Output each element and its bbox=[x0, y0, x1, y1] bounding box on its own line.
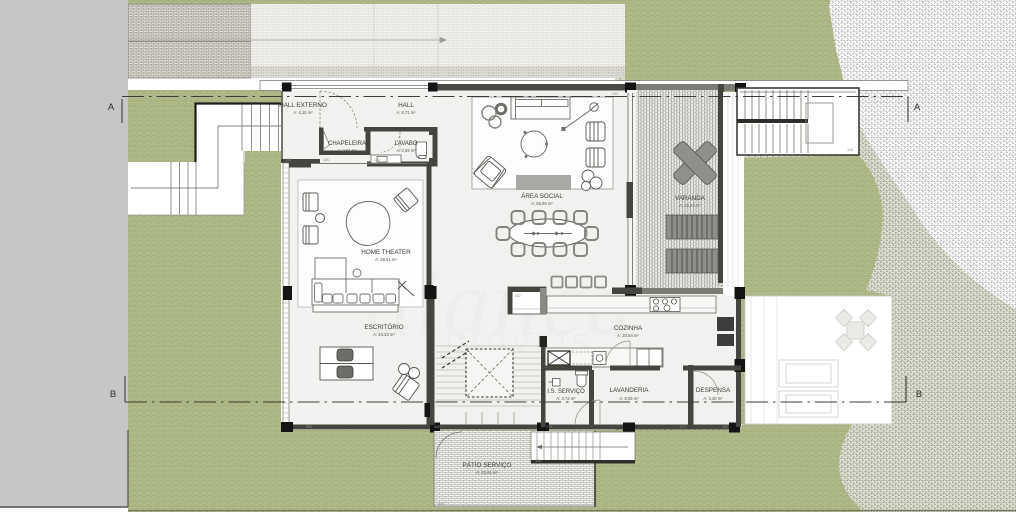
svg-text:A: 2,51 m²: A: 2,51 m² bbox=[337, 148, 357, 153]
svg-text:A: 3,73 m²: A: 3,73 m² bbox=[556, 396, 576, 401]
svg-text:VARANDA: VARANDA bbox=[675, 195, 706, 202]
svg-text:HALL EXTERNO: HALL EXTERNO bbox=[279, 102, 327, 109]
svg-text:ÁREA SOCIAL: ÁREA SOCIAL bbox=[521, 191, 563, 200]
svg-text:245: 245 bbox=[612, 92, 618, 96]
svg-text:A: A bbox=[914, 102, 921, 113]
svg-text:DESPENSA: DESPENSA bbox=[696, 387, 731, 394]
svg-text:A: 6,71 m²: A: 6,71 m² bbox=[396, 110, 416, 115]
svg-text:COZINHA: COZINHA bbox=[614, 325, 643, 332]
svg-text:520: 520 bbox=[306, 425, 312, 429]
svg-text:HALL: HALL bbox=[398, 102, 414, 109]
svg-text:152: 152 bbox=[722, 425, 728, 429]
svg-text:140: 140 bbox=[374, 158, 380, 162]
svg-text:A: 20,54 m²: A: 20,54 m² bbox=[617, 333, 639, 338]
svg-text:LAVABO: LAVABO bbox=[394, 141, 417, 147]
svg-text:A: 32,24 m²: A: 32,24 m² bbox=[679, 203, 701, 208]
svg-text:A: 22,91 m²: A: 22,91 m² bbox=[476, 470, 498, 475]
svg-text:A: A bbox=[108, 102, 115, 113]
svg-text:PÁTIO SERVIÇO: PÁTIO SERVIÇO bbox=[463, 460, 512, 469]
svg-text:A: 8,05 m²: A: 8,05 m² bbox=[619, 396, 639, 401]
svg-text:HOME THEATER: HOME THEATER bbox=[361, 249, 411, 256]
svg-text:110: 110 bbox=[847, 148, 853, 152]
svg-text:A: 24,33 m²: A: 24,33 m² bbox=[373, 332, 395, 337]
svg-text:A: 28,61 m²: A: 28,61 m² bbox=[375, 257, 397, 262]
svg-text:ESCRITÓRIO: ESCRITÓRIO bbox=[364, 322, 403, 331]
svg-text:172: 172 bbox=[546, 425, 552, 429]
svg-text:B: B bbox=[916, 389, 922, 400]
svg-text:CHAPELEIRA: CHAPELEIRA bbox=[328, 141, 366, 147]
svg-text:108: 108 bbox=[535, 459, 541, 463]
svg-text:542: 542 bbox=[438, 502, 444, 506]
svg-text:LAVANDERIA: LAVANDERIA bbox=[610, 387, 650, 394]
svg-text:145: 145 bbox=[285, 158, 291, 162]
svg-text:I.S. SERVIÇO: I.S. SERVIÇO bbox=[547, 389, 585, 395]
svg-text:110: 110 bbox=[515, 294, 521, 298]
svg-text:180: 180 bbox=[323, 158, 329, 162]
svg-text:371: 371 bbox=[680, 425, 686, 429]
svg-text:A: 3,30 m²: A: 3,30 m² bbox=[703, 396, 723, 401]
svg-text:A: 2,93 m²: A: 2,93 m² bbox=[396, 148, 416, 153]
svg-text:400: 400 bbox=[434, 425, 440, 429]
svg-text:A: 4,15 m²: A: 4,15 m² bbox=[293, 110, 313, 115]
svg-text:A: 55,90 m²: A: 55,90 m² bbox=[531, 201, 553, 206]
svg-text:B: B bbox=[110, 389, 116, 400]
